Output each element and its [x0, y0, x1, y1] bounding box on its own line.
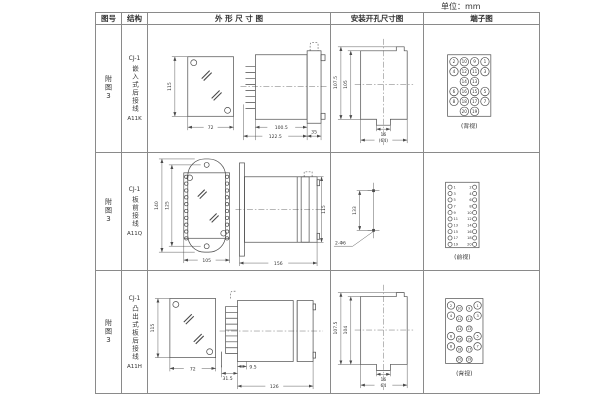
r3-dim-front-height: 115	[150, 324, 156, 333]
terminal-number: 5	[453, 198, 455, 202]
terminal-number: 16	[457, 337, 461, 341]
header-mounting: 安装开孔尺寸图	[331, 13, 424, 25]
terminal-number: 16	[467, 230, 472, 234]
terminal-number: 4	[469, 192, 472, 196]
terminal-number: 12	[467, 217, 471, 221]
row2-fig: 附图3	[104, 198, 114, 225]
r2-side-dims: 156 115	[239, 177, 327, 267]
row2-code: A11Q	[127, 231, 142, 237]
header-structure: 结构	[122, 13, 148, 25]
r2-dim-body-height: 115	[321, 205, 327, 214]
r3-dim-cutout-inner: 104	[343, 326, 349, 335]
row1-code: A11K	[127, 116, 141, 122]
terminal-number: 11	[472, 69, 478, 74]
terminal-number: 20	[462, 109, 468, 114]
terminal-number: 11	[453, 217, 457, 221]
row1-mounting-cell: 107.5 105 16 (64)	[331, 25, 424, 153]
header-terminal: 端子图	[424, 13, 539, 25]
terminal-number: 8	[469, 205, 472, 209]
r1-dim-cutout-width: (64)	[379, 138, 389, 144]
terminal-number: 10	[467, 211, 472, 215]
spec-table: 图号 结构 外 形 尺 寸 图 安装开孔尺寸图 端子图 附图3 CJ-1 嵌入式…	[95, 12, 540, 394]
r1-front-dims: 115 72	[167, 57, 234, 131]
row2-mounting-cell: 133 2-Φ6	[331, 153, 424, 271]
r3-dim-cutout-width: 64	[381, 383, 387, 389]
terminal-number: 7	[476, 345, 478, 349]
row2-terminal-cell: 1 2 3 4 5 6 7 8 9 10 11 12 13 14 15 16 1	[424, 153, 539, 271]
terminal-number: 3	[476, 314, 478, 318]
r3-dim-depth: 126	[270, 384, 279, 390]
r2-dim-hole-spacing: 133	[352, 206, 358, 215]
row3-structure-cell: CJ-1 凸出式板后接线 A11H	[122, 271, 148, 393]
terminal-number: 1	[476, 304, 478, 308]
terminal-number: 1	[484, 59, 487, 64]
row2-terminal-drawing: 1 2 3 4 5 6 7 8 9 10 11 12 13 14 15 16 1	[424, 153, 539, 270]
r1-dim-front-height: 115	[167, 82, 173, 91]
row3-mounting-cell: 107.5 104 16 64	[331, 271, 424, 393]
r3-dim-notch-width: 16	[381, 377, 387, 383]
r2-dim-front-height: 140	[154, 201, 160, 210]
r3-terminal-circles: 2 4 6 8 1 3 5 7 10 12 14 16 18	[447, 302, 481, 363]
row1-model: CJ-1	[129, 55, 141, 62]
row1-outline-cell: 115 72	[148, 25, 331, 153]
r1-terminal-circles: 2 10 9 1 4 12 11 3 14 13 6 16 15 5 8 18	[450, 57, 489, 115]
r1-dim-cutout-outer: 107.5	[333, 76, 339, 89]
r3-dim-front-width: 72	[190, 366, 196, 372]
header-fig: 图号	[96, 13, 122, 25]
terminal-number: 6	[469, 198, 472, 202]
r1-mounting-dims: 107.5 105 16 (64)	[333, 47, 407, 144]
terminal-number: 20	[467, 243, 472, 247]
row2-outline-cell: 140 125 105	[148, 153, 331, 271]
datasheet-page: 单位：mm 图号 结构 外 形 尺 寸 图 安装开孔尺寸图 端子图 附图3 CJ…	[0, 0, 600, 400]
row1-structure-cell: CJ-1 嵌入式后接线 A11K	[122, 25, 148, 153]
terminal-number: 9	[473, 59, 476, 64]
r2-hole-label: 2-Φ6	[335, 241, 346, 247]
terminal-number: 4	[453, 69, 456, 74]
r2-front-terminals	[185, 175, 229, 240]
terminal-number: 16	[462, 89, 468, 94]
row3-model: CJ-1	[129, 295, 141, 302]
terminal-number: 9	[453, 211, 455, 215]
r1-dim-flange-depth: 35	[311, 130, 317, 136]
r2-dim-front-width: 105	[202, 258, 211, 264]
terminal-number: 6	[453, 89, 456, 94]
terminal-number: 2	[450, 304, 452, 308]
row2-model: CJ-1	[129, 186, 141, 193]
row1-structure: 嵌入式后接线	[130, 65, 140, 113]
header-outline: 外 形 尺 寸 图	[148, 13, 331, 25]
terminal-number: 7	[453, 205, 455, 209]
terminal-number: 8	[453, 99, 456, 104]
row1-terminal-cell: 2 10 9 1 4 12 11 3 14 13 6 16 15 5 8 18	[424, 25, 539, 153]
row3-fig-cell: 附图3	[96, 271, 122, 393]
r1-dim-cutout-inner: 105	[343, 80, 349, 89]
terminal-number: 10	[457, 307, 461, 311]
terminal-number: 14	[467, 224, 472, 228]
r2-dim-depth: 156	[274, 261, 283, 267]
row2-structure: 板前接线	[130, 196, 140, 228]
terminal-number: 19	[467, 358, 471, 362]
r3-front-dims: 115 72	[150, 299, 216, 373]
r2-terminal-circles: 1 2 3 4 5 6 7 8 9 10 11 12 13 14 15 16 1	[448, 185, 477, 246]
r3-front-view	[170, 299, 216, 358]
terminal-number: 8	[450, 345, 452, 349]
r1-view-label: (背视)	[461, 122, 477, 130]
r3-side-dims: 31.5 9.5 126	[222, 362, 313, 391]
r3-dim-cutout-outer: 107.5	[333, 321, 339, 334]
terminal-number: 15	[467, 337, 471, 341]
r3-side-view	[220, 291, 323, 367]
r3-mounting-dims: 107.5 104 16 64	[333, 293, 407, 389]
terminal-number: 18	[462, 99, 468, 104]
terminal-number: 5	[476, 335, 478, 339]
terminal-number: 6	[450, 335, 453, 339]
r1-front-view	[188, 57, 234, 117]
r2-mounting-dims: 133 2-Φ6	[334, 191, 374, 247]
terminal-number: 3	[484, 69, 487, 74]
r3-dim-pin-depth: 31.5	[222, 376, 232, 382]
r1-dim-depth-inner: 100.5	[275, 125, 288, 131]
row1-fig: 附图3	[104, 75, 114, 102]
row1-terminal-drawing: 2 10 9 1 4 12 11 3 14 13 6 16 15 5 8 18	[424, 25, 539, 152]
terminal-number: 17	[467, 347, 471, 351]
row3-structure: 凸出式板后接线	[130, 305, 140, 361]
terminal-number: 10	[462, 59, 468, 64]
terminal-number: 9	[468, 307, 470, 311]
terminal-number: 11	[467, 317, 471, 321]
r3-dim-gap: 9.5	[249, 364, 256, 370]
terminal-number: 17	[472, 99, 478, 104]
r1-dim-notch-width: 16	[381, 132, 387, 138]
terminal-number: 13	[453, 224, 457, 228]
r2-dim-hole-spacing: 125	[164, 201, 170, 210]
terminal-number: 15	[472, 89, 478, 94]
r2-side-view	[236, 163, 327, 256]
terminal-number: 4	[450, 314, 453, 318]
r2-front-dims: 140 125 105	[154, 159, 230, 264]
terminal-number: 5	[484, 89, 487, 94]
terminal-number: 3	[453, 192, 455, 196]
terminal-number: 17	[453, 236, 457, 240]
r2-holes	[368, 183, 380, 239]
row3-terminal-drawing: 2 4 6 8 1 3 5 7 10 12 14 16 18	[424, 271, 539, 393]
terminal-number: 14	[462, 79, 468, 84]
terminal-number: 2	[469, 185, 471, 189]
row3-mounting-drawing: 107.5 104 16 64	[331, 271, 423, 393]
unit-label: 单位：mm	[441, 1, 481, 12]
terminal-number: 7	[484, 99, 487, 104]
terminal-number: 13	[467, 327, 471, 331]
r1-dim-depth-total: 122.5	[269, 134, 282, 140]
row2-fig-cell: 附图3	[96, 153, 122, 271]
r2-terminal-box	[446, 182, 479, 247]
row3-outline-drawing: 115 72	[148, 271, 330, 393]
row2-mounting-drawing: 133 2-Φ6	[331, 153, 423, 270]
row3-fig: 附图3	[104, 319, 114, 346]
terminal-number: 18	[467, 236, 472, 240]
row1-fig-cell: 附图3	[96, 25, 122, 153]
terminal-number: 19	[472, 109, 478, 114]
row2-outline-drawing: 140 125 105	[148, 153, 330, 270]
terminal-number: 13	[472, 79, 478, 84]
terminal-number: 12	[462, 69, 468, 74]
terminal-number: 14	[457, 327, 461, 331]
terminal-number: 18	[457, 347, 461, 351]
r2-front-view	[184, 159, 230, 252]
r2-view-label: (前视)	[454, 253, 470, 261]
r1-side-view	[240, 42, 328, 123]
row3-terminal-cell: 2 4 6 8 1 3 5 7 10 12 14 16 18	[424, 271, 539, 393]
row3-outline-cell: 115 72	[148, 271, 331, 393]
row1-mounting-drawing: 107.5 105 16 (64)	[331, 25, 423, 152]
terminal-number: 20	[457, 358, 461, 362]
r3-terminal-box	[446, 299, 483, 364]
r1-dim-front-width: 72	[208, 125, 214, 131]
row3-code: A11H	[127, 364, 142, 370]
terminal-number: 2	[453, 59, 456, 64]
terminal-number: 1	[453, 185, 455, 189]
r3-view-label: (背视)	[456, 369, 472, 377]
row1-outline-drawing: 115 72	[148, 25, 330, 152]
terminal-number: 19	[453, 243, 457, 247]
row2-structure-cell: CJ-1 板前接线 A11Q	[122, 153, 148, 271]
terminal-number: 12	[457, 317, 461, 321]
terminal-number: 15	[453, 230, 457, 234]
